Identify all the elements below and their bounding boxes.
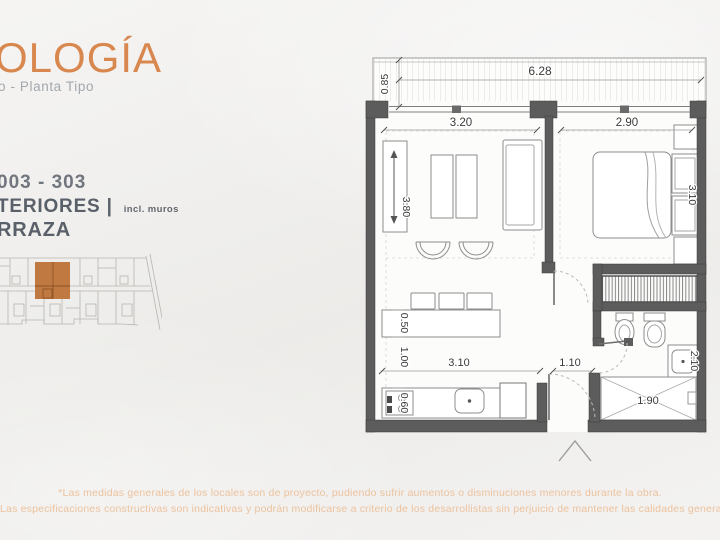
dim-island-depth: 0.50 [398, 313, 410, 334]
key-plan [0, 246, 162, 334]
interiors-note: incl. muros [124, 204, 179, 215]
dim-island-clearance: 1.00 [398, 347, 410, 368]
entry-arrow-icon [559, 441, 591, 461]
toilet [644, 313, 665, 347]
terrace-label: RRAZA [0, 219, 71, 242]
interiors-line: TERIORES | incl. muros [0, 196, 179, 218]
footer-disclaimer-1: *Las medidas generales de los locales so… [0, 487, 720, 499]
dim-bath-length: 2.10 [688, 351, 700, 372]
dim-shower-width: 1.90 [637, 395, 658, 407]
bar-stool [467, 293, 492, 309]
dining-table [456, 155, 477, 218]
typology-sheet: OLOGÍA o - Planta Tipo 003 - 303 TERIORE… [0, 0, 720, 540]
window-break-icon [452, 106, 461, 114]
bar-stool [411, 293, 435, 309]
dim-terrace-width: 6.28 [528, 64, 552, 78]
page-title: OLOGÍA [0, 34, 162, 82]
dim-counter-depth: 0.60 [398, 393, 410, 414]
bar-stool [439, 293, 464, 309]
dim-living-length: 3.80 [400, 197, 412, 218]
dim-bedroom-length: 3.10 [686, 185, 698, 206]
bed [593, 152, 671, 238]
key-plan-highlight-unit [35, 262, 70, 299]
units-range: 003 - 303 [0, 172, 86, 194]
fridge [500, 383, 526, 418]
dining-table [431, 155, 453, 218]
sofa [503, 140, 542, 230]
dim-bedroom-width: 2.90 [616, 117, 638, 129]
footer-disclaimer-2: Las especificaciones constructivas son i… [0, 503, 720, 515]
interiors-label: TERIORES | [0, 196, 113, 218]
page-subtitle: o - Planta Tipo [0, 79, 94, 94]
wardrobe [602, 276, 697, 302]
dim-terrace-depth: 0.85 [379, 74, 391, 95]
closet-bottom [674, 237, 699, 264]
key-plan-building [0, 254, 162, 330]
closet-top [674, 125, 699, 149]
dim-hall-width: 1.10 [559, 357, 580, 369]
sink [455, 389, 484, 413]
dim-living-width: 3.20 [450, 117, 472, 129]
dim-kitchen-width: 3.10 [448, 357, 469, 369]
floor-plan: 6.28 0.85 3.20 2.90 3.80 3.10 0.50 1.00 … [356, 50, 712, 468]
window-break-icon [620, 106, 629, 114]
